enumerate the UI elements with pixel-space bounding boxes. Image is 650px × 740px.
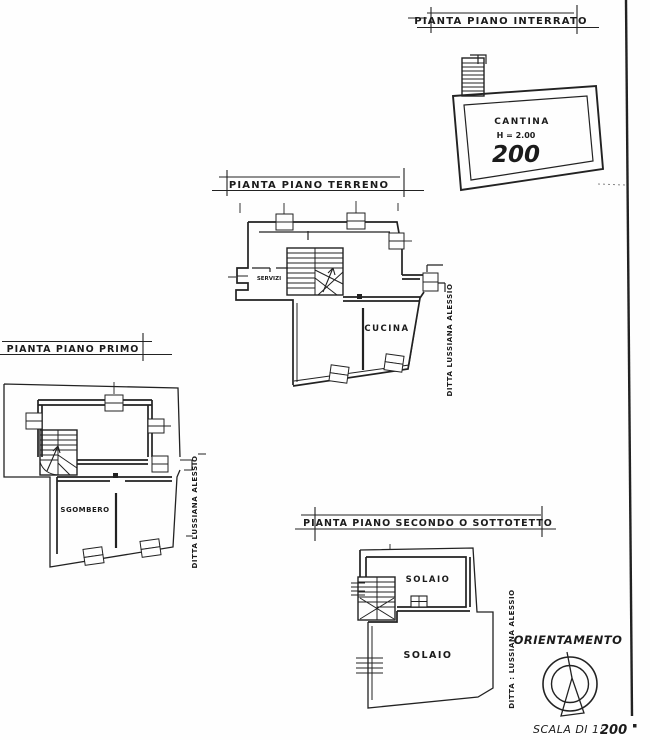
room-label-servizi: SERVIZI [257,276,281,282]
title-box-primo: PIANTA PIANO PRIMO [0,333,172,361]
ground-floorplan: SERVIZI CUCINA DITTA LUSSIANA ALESSIO [228,201,454,397]
room-label-solaio-upper: SOLAIO [406,575,451,585]
scale-value: 200 [600,723,627,738]
attic-floorplan: SOLAIO SOLAIO DITTA : LUSSIANA ALESSIO [351,544,516,709]
cantina-height-value: 200 [492,142,540,168]
orientation-label: ORIENTAMENTO [514,633,623,647]
plan-title-secondo: PIANTA PIANO SECONDO O SOTTOTETTO [303,518,553,529]
ditta-note-primo: DITTA LUSSIANA ALESSIO [191,455,199,568]
room-label-cucina: CUCINA [364,324,409,334]
ditta-note-terreno: DITTA LUSSIANA ALESSIO [446,283,454,396]
plan-title-interrato: PIANTA PIANO INTERRATO [414,16,587,27]
cantina-height-note: H = 2.00 [497,131,536,140]
room-label-cantina: CANTINA [494,117,550,127]
compass-icon [543,652,597,716]
first-floorplan: SGOMBERO DITTA LUSSIANA ALESSIO [4,382,206,569]
plan-title-terreno: PIANTA PIANO TERRENO [229,180,389,191]
plan-title-primo: PIANTA PIANO PRIMO [7,344,140,355]
scanned-floorplan-sheet: PIANTA PIANO INTERRATO CANTINA H = 2.00 … [0,0,650,740]
title-box-terreno: PIANTA PIANO TERRENO [212,168,424,197]
stairs-symbol [287,248,343,295]
ditta-note-secondo: DITTA : LUSSIANA ALESSIO [508,589,516,708]
sheet-border [598,0,637,728]
stairs-symbol [40,430,77,475]
cantina-floorplan: CANTINA H = 2.00 200 [453,55,603,190]
room-label-sgombero: SGOMBERO [60,506,109,514]
room-label-solaio-lower: SOLAIO [404,650,453,661]
scale-label: SCALA DI 1: [533,723,604,736]
orientation-block: ORIENTAMENTO SCALA DI 1: 200 [514,633,628,738]
stairs-symbol [351,577,395,620]
title-box-interrato: PIANTA PIANO INTERRATO [408,5,599,34]
stairs-symbol [462,55,486,96]
chimney-symbol [411,596,427,607]
title-box-secondo: PIANTA PIANO SECONDO O SOTTOTETTO [295,506,556,541]
